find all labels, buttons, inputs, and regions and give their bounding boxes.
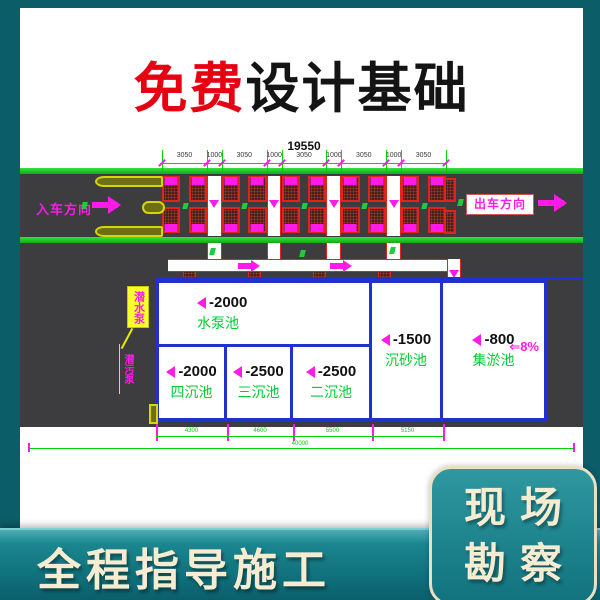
wheel-stopper	[142, 201, 165, 214]
grate-square	[444, 210, 456, 234]
annotation-callout: 潜水泵	[127, 286, 149, 328]
drain-channel	[326, 176, 341, 236]
dimension-bottom-label: 4600	[253, 428, 266, 434]
grate-bay	[162, 176, 207, 236]
dimension-sub-label: 1000	[266, 152, 282, 159]
guide-ramp-top	[95, 176, 163, 187]
pool-name: 四沉池	[171, 382, 213, 402]
promo-image: 免费设计基础 19550 305010003050100030501000305…	[0, 0, 600, 600]
grate-square	[341, 176, 359, 202]
pool-name: 水泵池	[197, 313, 239, 333]
dimension-tick	[28, 443, 30, 452]
dimension-line-total	[28, 448, 575, 449]
grate-square	[222, 176, 240, 202]
grate-square	[282, 176, 300, 202]
dimension-bottom-label: 4300	[185, 428, 198, 434]
flow-arrow-icon	[238, 263, 254, 269]
pool-two: -2500 二沉池	[290, 344, 372, 421]
dimension-sub-label: 1000	[326, 152, 342, 159]
pool-pump: -2000 水泵池	[156, 280, 372, 347]
entry-arrow-icon	[92, 202, 118, 208]
pool-name: 集淤池	[473, 350, 515, 370]
depth-marker-icon	[197, 297, 206, 309]
pool-three: -2500 三沉池	[224, 344, 293, 421]
pool-depth: -2000	[178, 363, 216, 380]
dimension-sub-label: 3050	[416, 152, 432, 159]
badge-line2: 勘察	[464, 536, 576, 592]
title-rest: 设计基础	[246, 59, 470, 119]
dimension-tick	[372, 424, 374, 441]
dimension-sub-label: 3050	[356, 152, 372, 159]
grate-bay	[222, 176, 267, 236]
dimension-bottom-label: 5500	[326, 428, 339, 434]
exit-arrow-icon	[538, 200, 564, 206]
pool-sludge: -800 集淤池 ⇐8%	[440, 280, 547, 421]
footer-badge: 现场 勘察	[429, 466, 597, 600]
depth-marker-icon	[381, 334, 390, 346]
drain-channel	[386, 176, 401, 236]
sump-symbol	[149, 404, 158, 424]
slope-label: ⇐8%	[509, 339, 539, 355]
dimension-total-bottom: 40000	[292, 441, 309, 447]
drain-stub	[267, 243, 282, 260]
grate-square	[341, 207, 359, 233]
grate-square	[162, 176, 180, 202]
depth-marker-icon	[472, 334, 481, 346]
grate-bay	[282, 176, 327, 236]
grate-square	[368, 207, 386, 233]
pool-name: 沉砂池	[385, 350, 427, 370]
grate-square	[189, 176, 207, 202]
dimension-bottom-label: 5150	[401, 428, 414, 434]
dimension-line-bottom	[156, 436, 443, 437]
drain-channel	[207, 176, 222, 236]
dimension-sub-label: 1000	[386, 152, 402, 159]
grate-bay	[341, 176, 386, 236]
exit-direction-label: 出车方向	[466, 194, 534, 215]
dimension-tick	[227, 424, 229, 441]
depth-marker-icon	[233, 366, 242, 378]
grate-square	[401, 207, 419, 233]
dimension-sub-label: 3050	[296, 152, 312, 159]
title-highlight: 免费	[134, 59, 246, 119]
grate-square	[189, 207, 207, 233]
annotation-text: 潜水泵	[133, 291, 144, 324]
dimension-sub-label: 3050	[177, 152, 193, 159]
pool-depth: -2500	[318, 363, 356, 380]
pool-name: 三沉池	[238, 382, 280, 402]
footer-slogan: 全程指导施工	[16, 534, 352, 598]
badge-line1: 现场	[464, 480, 576, 536]
grate-square	[222, 207, 240, 233]
depth-marker-icon	[306, 366, 315, 378]
dimension-sub-label: 1000	[207, 152, 223, 159]
grate-square	[282, 207, 300, 233]
pool-depth: -2500	[245, 363, 283, 380]
depth-marker-icon	[166, 366, 175, 378]
grate-square	[308, 207, 326, 233]
grate-square	[401, 176, 419, 202]
grate-square	[308, 176, 326, 202]
pool-depth: -2000	[209, 294, 247, 311]
page-title: 免费设计基础	[20, 44, 583, 123]
flow-arrow-icon	[330, 263, 346, 269]
drain-channel	[267, 176, 282, 236]
grate-square	[368, 176, 386, 202]
annotation-vertical: 潜污泵	[119, 344, 134, 394]
grate-square	[248, 207, 266, 233]
dimension-total-top: 19550	[287, 139, 320, 153]
annotation-text: 潜污泵	[122, 354, 132, 384]
dimension-tick	[156, 424, 158, 441]
pool-depth: -1500	[393, 331, 431, 348]
pool-name: 二沉池	[310, 382, 352, 402]
grate-square	[444, 178, 456, 202]
dimension-tick	[293, 424, 295, 441]
drain-stub	[326, 243, 341, 260]
guide-ramp-bottom	[95, 226, 163, 237]
pool-sand: -1500 沉砂池	[369, 280, 443, 421]
dimension-sub-label: 3050	[236, 152, 252, 159]
grate-square	[248, 176, 266, 202]
grate-square	[162, 207, 180, 233]
dimension-tick	[573, 443, 575, 452]
dimension-tick	[443, 424, 445, 441]
pool-four: -2000 四沉池	[156, 344, 227, 421]
grate-bay	[401, 176, 446, 236]
